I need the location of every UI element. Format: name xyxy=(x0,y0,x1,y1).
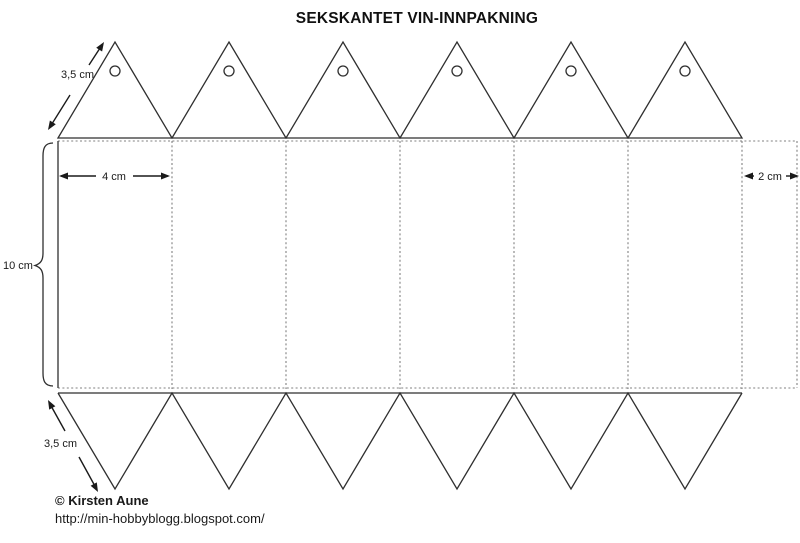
bottom-side-arrow-upper xyxy=(50,404,65,431)
blog-url-text[interactable]: http://min-hobbyblogg.blogspot.com/ xyxy=(55,511,265,526)
footer-credit: © Kirsten Aune http://min-hobbyblogg.blo… xyxy=(55,493,265,526)
arrowhead-up-icon xyxy=(96,40,107,51)
body-fold-lines xyxy=(58,141,797,389)
top-triangle-2 xyxy=(172,42,286,138)
arrowhead-right-icon xyxy=(161,173,170,180)
packaging-template-page: SEKSKANTET VIN-INNPAKNING xyxy=(0,0,800,543)
page-title: SEKSKANTET VIN-INNPAKNING xyxy=(296,10,538,27)
bottom-flap-side-label: 3,5 cm xyxy=(44,438,77,450)
arrowhead-left-icon xyxy=(744,173,753,180)
glue-flap-label: 2 cm xyxy=(758,171,782,183)
top-triangle-6 xyxy=(628,42,742,138)
height-dimension: 10 cm xyxy=(3,143,53,386)
panel-width-label: 4 cm xyxy=(102,171,126,183)
top-triangle-4 xyxy=(400,42,514,138)
copyright-text: © Kirsten Aune xyxy=(55,493,149,508)
glue-flap-dimension: 2 cm xyxy=(744,171,799,183)
arrowhead-down-icon xyxy=(91,482,101,493)
bottom-flap-side-dimension: 3,5 cm xyxy=(44,398,101,493)
top-triangle-3 xyxy=(286,42,400,138)
bottom-side-arrow-lower xyxy=(79,457,96,488)
top-flap-side-label: 3,5 cm xyxy=(61,69,94,81)
height-brace xyxy=(35,143,53,386)
top-flap-triangles xyxy=(58,42,742,138)
top-triangle-5 xyxy=(514,42,628,138)
packaging-template-diagram: SEKSKANTET VIN-INNPAKNING xyxy=(0,0,800,543)
arrowhead-left-icon xyxy=(59,173,68,180)
arrowhead-right-icon xyxy=(790,173,799,180)
panel-width-dimension: 4 cm xyxy=(59,171,170,183)
top-triangle-1 xyxy=(58,42,172,138)
height-label: 10 cm xyxy=(3,260,33,272)
bottom-flap-triangles xyxy=(58,393,742,489)
arrowhead-down-icon xyxy=(45,121,56,132)
bottom-zigzag-edge xyxy=(58,393,742,489)
arrowhead-up-icon xyxy=(45,398,55,409)
